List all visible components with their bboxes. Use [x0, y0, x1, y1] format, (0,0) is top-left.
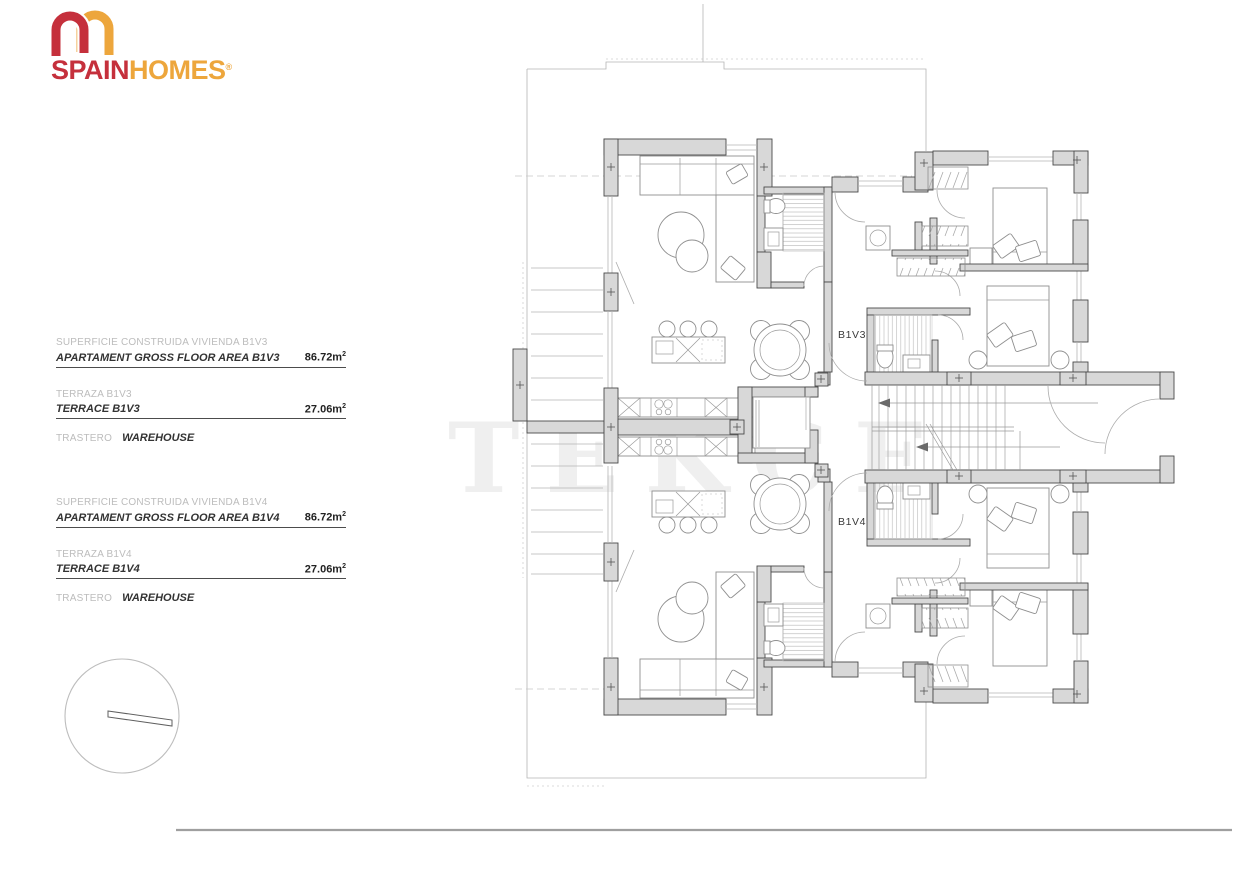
compass-needle — [108, 711, 172, 726]
unit-label-b1v4: B1V4 — [838, 516, 866, 528]
unit-label-b1v3: B1V3 — [838, 329, 866, 341]
logo-wordmark: SPAINHOMES® — [51, 55, 233, 85]
floor-plan: TEKCE SPAINHOMES® — [0, 0, 1234, 870]
floorplan-page: SUPERFICIE CONSTRUIDA VIVIENDA B1V3 APAR… — [0, 0, 1234, 870]
spainhomes-logo: SPAINHOMES® — [51, 15, 233, 85]
compass — [65, 659, 179, 773]
